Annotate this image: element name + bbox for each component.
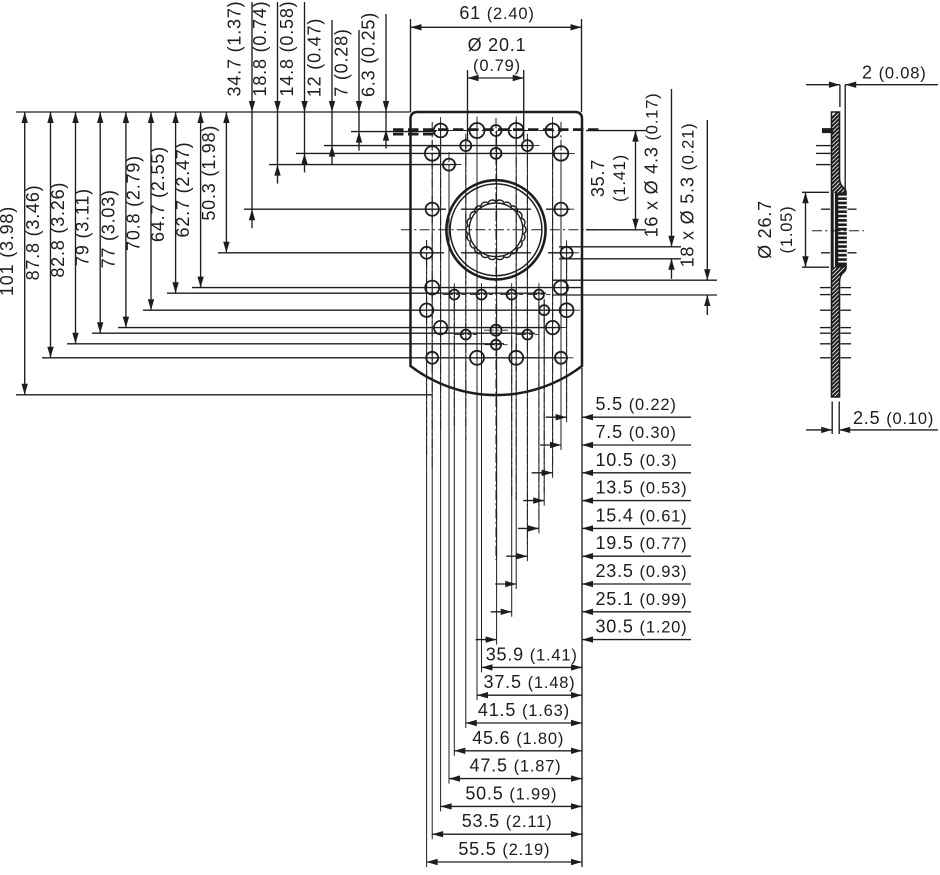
svg-text:(1.05): (1.05) bbox=[778, 206, 796, 254]
svg-text:53.5 (2.11): 53.5 (2.11) bbox=[462, 811, 553, 831]
svg-text:62.7 (2.47): 62.7 (2.47) bbox=[173, 142, 193, 238]
svg-text:35.9 (1.41): 35.9 (1.41) bbox=[486, 644, 578, 664]
svg-text:10.5 (0.3): 10.5 (0.3) bbox=[596, 450, 678, 470]
svg-text:45.6 (1.80): 45.6 (1.80) bbox=[472, 728, 564, 748]
svg-text:18.8 (0.74): 18.8 (0.74) bbox=[250, 1, 270, 97]
svg-text:(1.41): (1.41) bbox=[611, 154, 629, 202]
svg-text:7.5 (0.30): 7.5 (0.30) bbox=[596, 422, 677, 442]
svg-text:34.7 (1.37): 34.7 (1.37) bbox=[225, 1, 245, 97]
svg-text:50.5 (1.99): 50.5 (1.99) bbox=[465, 783, 557, 803]
svg-text:14.8 (0.58): 14.8 (0.58) bbox=[277, 1, 297, 97]
svg-text:47.5 (1.87): 47.5 (1.87) bbox=[470, 756, 562, 776]
svg-text:(0.79): (0.79) bbox=[473, 57, 521, 75]
svg-text:41.5 (1.63): 41.5 (1.63) bbox=[478, 700, 570, 720]
svg-text:Ø 20.1: Ø 20.1 bbox=[468, 35, 527, 55]
svg-text:37.5 (1.48): 37.5 (1.48) bbox=[484, 672, 576, 692]
svg-text:61 (2.40): 61 (2.40) bbox=[459, 3, 534, 23]
svg-text:Ø 26.7: Ø 26.7 bbox=[755, 200, 775, 259]
svg-text:55.5 (2.19): 55.5 (2.19) bbox=[458, 839, 550, 859]
svg-text:23.5 (0.93): 23.5 (0.93) bbox=[596, 561, 688, 581]
svg-text:13.5 (0.53): 13.5 (0.53) bbox=[596, 478, 688, 498]
svg-text:7 (0.28): 7 (0.28) bbox=[332, 28, 352, 96]
svg-text:79 (3.11): 79 (3.11) bbox=[73, 188, 93, 266]
svg-text:6.3 (0.25): 6.3 (0.25) bbox=[359, 12, 379, 97]
svg-text:64.7 (2.55): 64.7 (2.55) bbox=[148, 146, 168, 242]
svg-text:87.8 (3.46): 87.8 (3.46) bbox=[23, 185, 43, 281]
svg-text:35.7: 35.7 bbox=[588, 159, 608, 197]
svg-text:18 x Ø 5.3 (0.21): 18 x Ø 5.3 (0.21) bbox=[678, 123, 698, 268]
svg-text:30.5 (1.20): 30.5 (1.20) bbox=[596, 617, 688, 637]
svg-text:5.5 (0.22): 5.5 (0.22) bbox=[596, 394, 677, 414]
svg-text:70.8 (2.79): 70.8 (2.79) bbox=[124, 155, 144, 251]
svg-text:19.5 (0.77): 19.5 (0.77) bbox=[596, 533, 688, 553]
svg-text:12 (0.47): 12 (0.47) bbox=[305, 18, 325, 97]
svg-text:15.4 (0.61): 15.4 (0.61) bbox=[596, 505, 688, 525]
svg-text:77 (3.03): 77 (3.03) bbox=[98, 189, 118, 268]
svg-text:101 (3.98): 101 (3.98) bbox=[0, 206, 17, 296]
svg-text:82.8 (3.26): 82.8 (3.26) bbox=[48, 182, 68, 278]
svg-text:25.1 (0.99): 25.1 (0.99) bbox=[596, 589, 688, 609]
svg-text:16 x Ø 4.3 (0.17): 16 x Ø 4.3 (0.17) bbox=[642, 93, 662, 238]
svg-text:2.5 (0.10): 2.5 (0.10) bbox=[853, 408, 934, 428]
svg-text:2 (0.08): 2 (0.08) bbox=[862, 63, 927, 83]
svg-text:50.3 (1.98): 50.3 (1.98) bbox=[199, 125, 219, 221]
